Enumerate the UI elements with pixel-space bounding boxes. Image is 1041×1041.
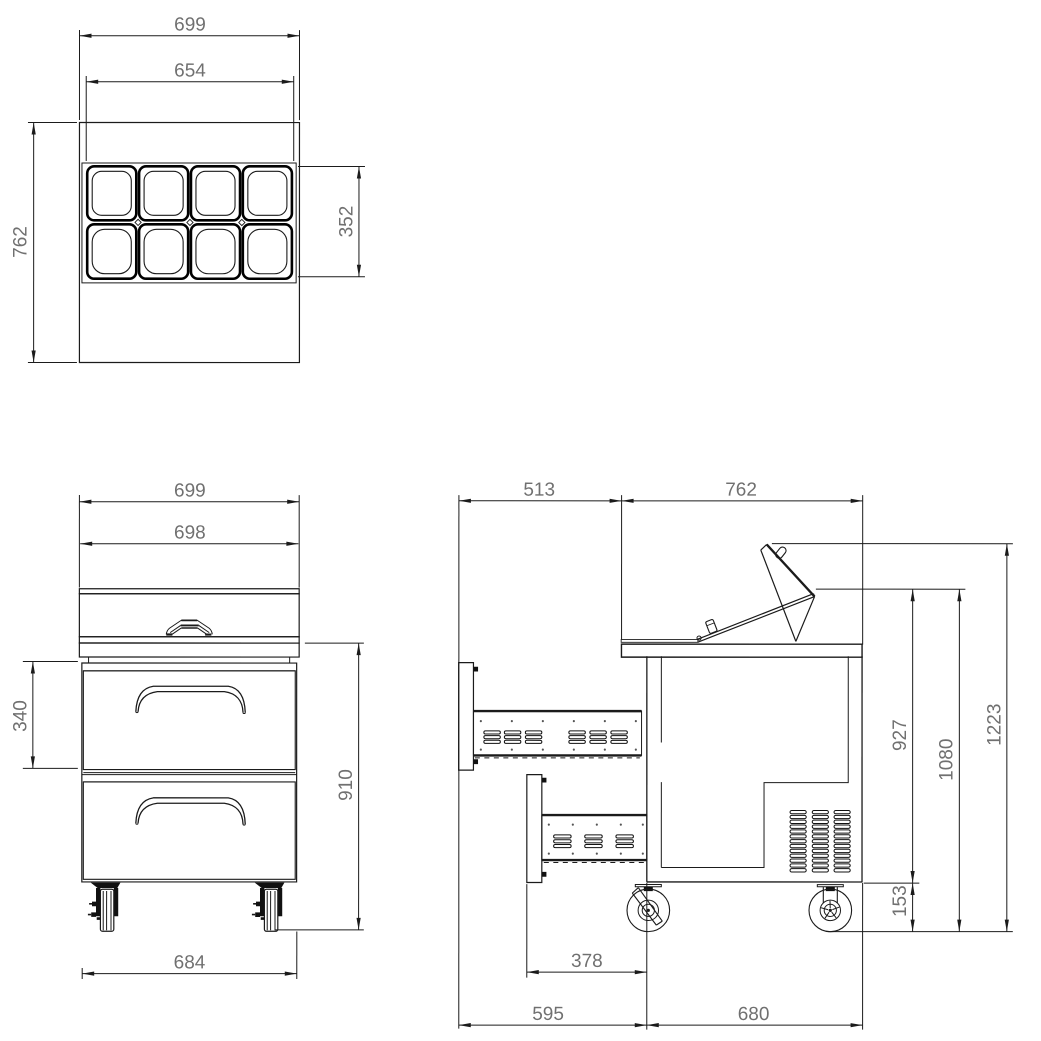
svg-text:654: 654 (174, 61, 206, 82)
svg-text:762: 762 (725, 480, 757, 501)
svg-text:680: 680 (738, 1004, 770, 1025)
svg-text:699: 699 (174, 481, 206, 502)
svg-text:699: 699 (174, 15, 206, 36)
svg-text:762: 762 (11, 226, 32, 258)
svg-text:340: 340 (10, 700, 31, 732)
svg-text:910: 910 (336, 769, 357, 801)
svg-text:378: 378 (571, 951, 603, 972)
svg-text:1080: 1080 (936, 739, 957, 781)
svg-text:684: 684 (174, 952, 206, 973)
svg-text:153: 153 (890, 885, 911, 917)
svg-text:698: 698 (174, 523, 206, 544)
svg-text:927: 927 (890, 719, 911, 751)
svg-text:513: 513 (523, 480, 555, 501)
svg-text:352: 352 (336, 206, 357, 238)
svg-text:1223: 1223 (984, 704, 1005, 746)
svg-text:595: 595 (532, 1004, 564, 1025)
